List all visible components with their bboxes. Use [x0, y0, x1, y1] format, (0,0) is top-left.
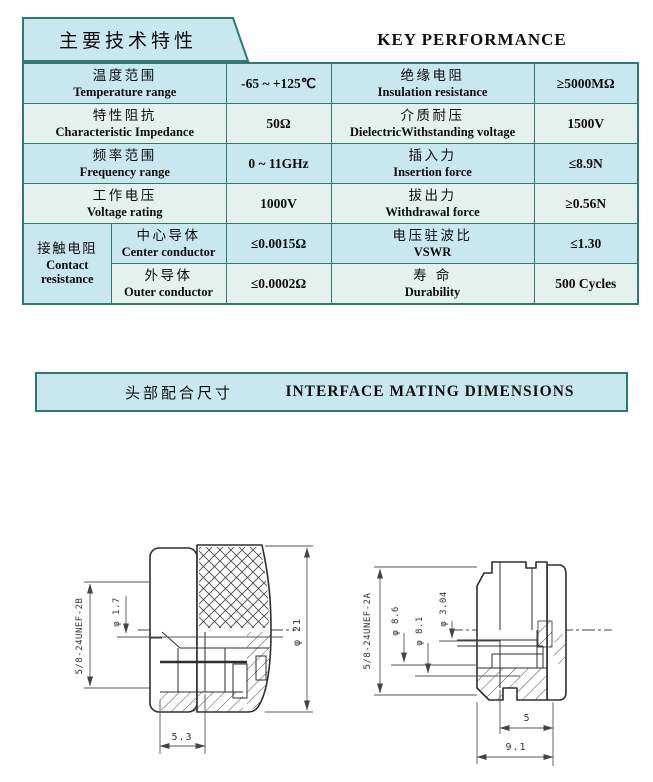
left-connector-drawing: φ 21 5/8-24UNEF-2B φ 1.7 5.3 [60, 515, 340, 782]
param-cell: 工作电压 Voltage rating [23, 184, 226, 224]
dim-dia-c: φ 3.04 [439, 591, 449, 627]
dim-dia-a: φ 8.6 [391, 606, 401, 636]
spec-table: 温度范围 Temperature range -65 ~ +125℃ 绝缘电阻 … [22, 62, 639, 305]
dim-thread-label: 5/8-24UNEF-2A [363, 592, 373, 669]
section1-title-en: KEY PERFORMANCE [312, 17, 632, 62]
param-en: Voltage rating [26, 205, 224, 219]
datasheet-page: 主要技术特性 KEY PERFORMANCE 温度范围 Temperature … [0, 0, 653, 782]
param-cell: 温度范围 Temperature range [23, 63, 226, 104]
param-cn: 寿 命 [334, 268, 532, 285]
param-cn: 电压驻波比 [334, 228, 532, 245]
dim-len-inner: 5 [523, 713, 530, 724]
param-cell: 拔出力 Withdrawal force [331, 184, 534, 224]
param-cn: 介质耐压 [334, 108, 532, 125]
param-cell: 中心导体 Center conductor [111, 224, 226, 264]
group-en: Contact resistance [26, 258, 109, 287]
table-row: 频率范围 Frequency range 0 ~ 11GHz 插入力 Inser… [23, 144, 638, 184]
param-en: Insulation resistance [334, 85, 532, 99]
interface-mating-header: 头部配合尺寸 INTERFACE MATING DIMENSIONS [35, 372, 628, 412]
dim-pin-diameter: φ 1.7 [112, 597, 122, 627]
value-cell: ≤0.0015Ω [226, 224, 331, 264]
dim-outer-diameter: φ 21 [292, 618, 303, 646]
param-en: Outer conductor [114, 285, 224, 299]
dim-thread-label: 5/8-24UNEF-2B [75, 598, 85, 675]
value-cell: ≥5000MΩ [534, 63, 638, 104]
value-cell: 500 Cycles [534, 264, 638, 305]
dim-dia-b: φ 8.1 [415, 616, 425, 646]
param-en: Durability [334, 285, 532, 299]
section2-title-cn: 头部配合尺寸 [99, 374, 259, 410]
contact-resistance-group-cell: 接触电阻 Contact resistance [23, 224, 111, 305]
section2-title-en: INTERFACE MATING DIMENSIONS [265, 374, 595, 410]
param-cn: 频率范围 [26, 148, 224, 165]
right-connector-drawing: 5/8-24UNEF-2A φ 8.6 φ 8.1 φ 3.04 5 9.1 [350, 540, 650, 782]
param-cell: 介质耐压 DielectricWithstanding voltage [331, 104, 534, 144]
param-en: Withdrawal force [334, 205, 532, 219]
value-cell: 1000V [226, 184, 331, 224]
param-cell: 频率范围 Frequency range [23, 144, 226, 184]
param-en: Insertion force [334, 165, 532, 179]
value-cell: -65 ~ +125℃ [226, 63, 331, 104]
param-cn: 拔出力 [334, 188, 532, 205]
param-en: Center conductor [114, 245, 224, 259]
param-cell: 绝缘电阻 Insulation resistance [331, 63, 534, 104]
value-cell: ≥0.56N [534, 184, 638, 224]
value-cell: 1500V [534, 104, 638, 144]
param-cn: 插入力 [334, 148, 532, 165]
param-cell: 外导体 Outer conductor [111, 264, 226, 305]
param-cell: 电压驻波比 VSWR [331, 224, 534, 264]
value-cell: ≤1.30 [534, 224, 638, 264]
table-row: 温度范围 Temperature range -65 ~ +125℃ 绝缘电阻 … [23, 63, 638, 104]
group-cn: 接触电阻 [26, 241, 109, 258]
param-cn: 温度范围 [26, 68, 224, 85]
table-row: 特性阻抗 Characteristic Impedance 50Ω 介质耐压 D… [23, 104, 638, 144]
left-drawing-part [138, 545, 296, 712]
dim-len-overall: 9.1 [505, 742, 526, 753]
value-cell: 0 ~ 11GHz [226, 144, 331, 184]
param-cn: 外导体 [114, 268, 224, 285]
param-cell: 插入力 Insertion force [331, 144, 534, 184]
section1-title-cn: 主要技术特性 [22, 17, 234, 62]
param-cn: 工作电压 [26, 188, 224, 205]
right-drawing-part [450, 562, 612, 700]
param-en: VSWR [334, 245, 532, 259]
param-en: Temperature range [26, 85, 224, 99]
table-row: 工作电压 Voltage rating 1000V 拔出力 Withdrawal… [23, 184, 638, 224]
param-cn: 中心导体 [114, 228, 224, 245]
value-cell: 50Ω [226, 104, 331, 144]
param-en: DielectricWithstanding voltage [334, 125, 532, 139]
param-cn: 特性阻抗 [26, 108, 224, 125]
key-performance-tab: 主要技术特性 [22, 17, 250, 63]
param-en: Frequency range [26, 165, 224, 179]
param-cell: 特性阻抗 Characteristic Impedance [23, 104, 226, 144]
param-cn: 绝缘电阻 [334, 68, 532, 85]
table-row: 外导体 Outer conductor ≤0.0002Ω 寿 命 Durabil… [23, 264, 638, 305]
value-cell: ≤0.0002Ω [226, 264, 331, 305]
param-cell: 寿 命 Durability [331, 264, 534, 305]
table-row: 接触电阻 Contact resistance 中心导体 Center cond… [23, 224, 638, 264]
param-en: Characteristic Impedance [26, 125, 224, 139]
value-cell: ≤8.9N [534, 144, 638, 184]
dim-bore-width: 5.3 [171, 732, 192, 743]
